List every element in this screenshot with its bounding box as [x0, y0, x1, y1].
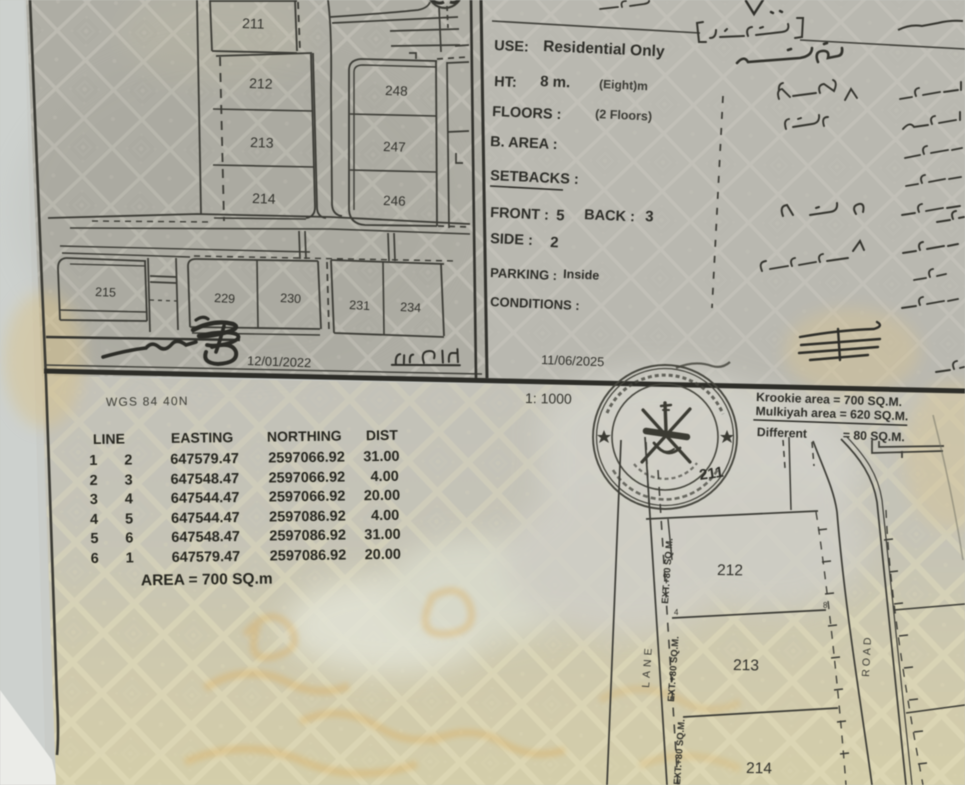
svg-text:(Eight)m: (Eight)m [599, 77, 648, 93]
svg-text:4: 4 [125, 491, 133, 507]
svg-text:246: 246 [383, 193, 406, 209]
svg-text:2597086.92: 2597086.92 [270, 547, 347, 564]
svg-text:212: 212 [249, 75, 273, 92]
svg-text:5: 5 [90, 531, 98, 547]
svg-text:1: 1 [126, 550, 134, 566]
svg-text:(2 Floors): (2 Floors) [595, 107, 653, 124]
svg-text:Inside: Inside [563, 267, 600, 283]
svg-text:4: 4 [674, 608, 679, 617]
svg-text:647548.47: 647548.47 [171, 529, 240, 546]
svg-text:2597086.92: 2597086.92 [269, 527, 346, 544]
svg-text:4: 4 [90, 512, 98, 528]
svg-text:2597066.92: 2597066.92 [269, 488, 346, 505]
svg-text:211: 211 [242, 15, 265, 32]
svg-text:B. AREA :: B. AREA : [490, 134, 558, 153]
svg-text:2: 2 [124, 452, 132, 468]
svg-text:AREA = 700 SQ.m: AREA = 700 SQ.m [141, 571, 273, 590]
svg-text:1: 1 [89, 453, 97, 469]
svg-text:31.00: 31.00 [364, 527, 401, 544]
svg-text:229: 229 [214, 291, 236, 306]
svg-text:213: 213 [733, 657, 759, 674]
svg-text:3: 3 [645, 208, 654, 225]
svg-text:8 m.: 8 m. [540, 73, 571, 91]
svg-text:3: 3 [124, 472, 132, 488]
svg-text:215: 215 [95, 285, 116, 300]
svg-text:2597086.92: 2597086.92 [269, 508, 346, 525]
svg-text:LINE: LINE [93, 431, 125, 447]
svg-text:11/06/2025: 11/06/2025 [541, 352, 605, 369]
svg-text:234: 234 [400, 300, 422, 315]
svg-text:214: 214 [252, 190, 276, 207]
svg-text:5: 5 [125, 511, 133, 527]
svg-text:4.00: 4.00 [371, 508, 399, 524]
svg-text:DIST: DIST [366, 427, 399, 443]
svg-text:213: 213 [250, 134, 274, 151]
svg-text:247: 247 [383, 139, 406, 155]
svg-text:20.00: 20.00 [364, 488, 401, 505]
svg-text:2597066.92: 2597066.92 [268, 469, 345, 486]
svg-text:647544.47: 647544.47 [171, 510, 240, 527]
svg-text:EASTING: EASTING [171, 429, 234, 446]
svg-text:3: 3 [90, 492, 98, 508]
svg-text:WGS 84 40N: WGS 84 40N [106, 394, 189, 409]
svg-text:Different: Different [757, 425, 808, 441]
svg-text:211: 211 [698, 464, 724, 484]
svg-text:ROAD: ROAD [860, 634, 874, 677]
svg-text:647548.47: 647548.47 [170, 471, 239, 488]
svg-text:231: 231 [349, 298, 371, 313]
svg-text:6: 6 [91, 551, 99, 567]
svg-text:PARKING :: PARKING : [490, 265, 558, 283]
svg-text:31.00: 31.00 [363, 449, 400, 466]
svg-text:5: 5 [556, 207, 565, 224]
svg-text:12/01/2022: 12/01/2022 [247, 353, 312, 370]
svg-text:4.00: 4.00 [370, 469, 398, 485]
svg-text:1: 1000: 1: 1000 [525, 390, 572, 407]
svg-text:FRONT :: FRONT : [490, 205, 549, 224]
svg-text:214: 214 [746, 760, 773, 777]
svg-text:647579.47: 647579.47 [170, 451, 239, 468]
svg-text:248: 248 [385, 83, 408, 99]
svg-text:2: 2 [89, 473, 97, 489]
svg-text:BACK :: BACK : [584, 207, 635, 225]
svg-text:FLOORS :: FLOORS : [492, 104, 562, 123]
svg-text:8: 8 [823, 601, 828, 610]
svg-text:SIDE :: SIDE : [490, 231, 533, 249]
svg-text:647579.47: 647579.47 [172, 549, 241, 566]
svg-text:647544.47: 647544.47 [171, 490, 240, 507]
svg-text:USE:: USE: [494, 38, 529, 56]
svg-text:2: 2 [550, 234, 559, 251]
svg-text:230: 230 [280, 291, 302, 306]
svg-text:2597066.92: 2597066.92 [268, 449, 345, 466]
svg-text:6: 6 [125, 530, 133, 546]
svg-text:212: 212 [717, 562, 743, 579]
svg-text:HT:: HT: [494, 74, 517, 91]
svg-text:NORTHING: NORTHING [267, 428, 342, 445]
svg-text:20.00: 20.00 [365, 547, 402, 564]
